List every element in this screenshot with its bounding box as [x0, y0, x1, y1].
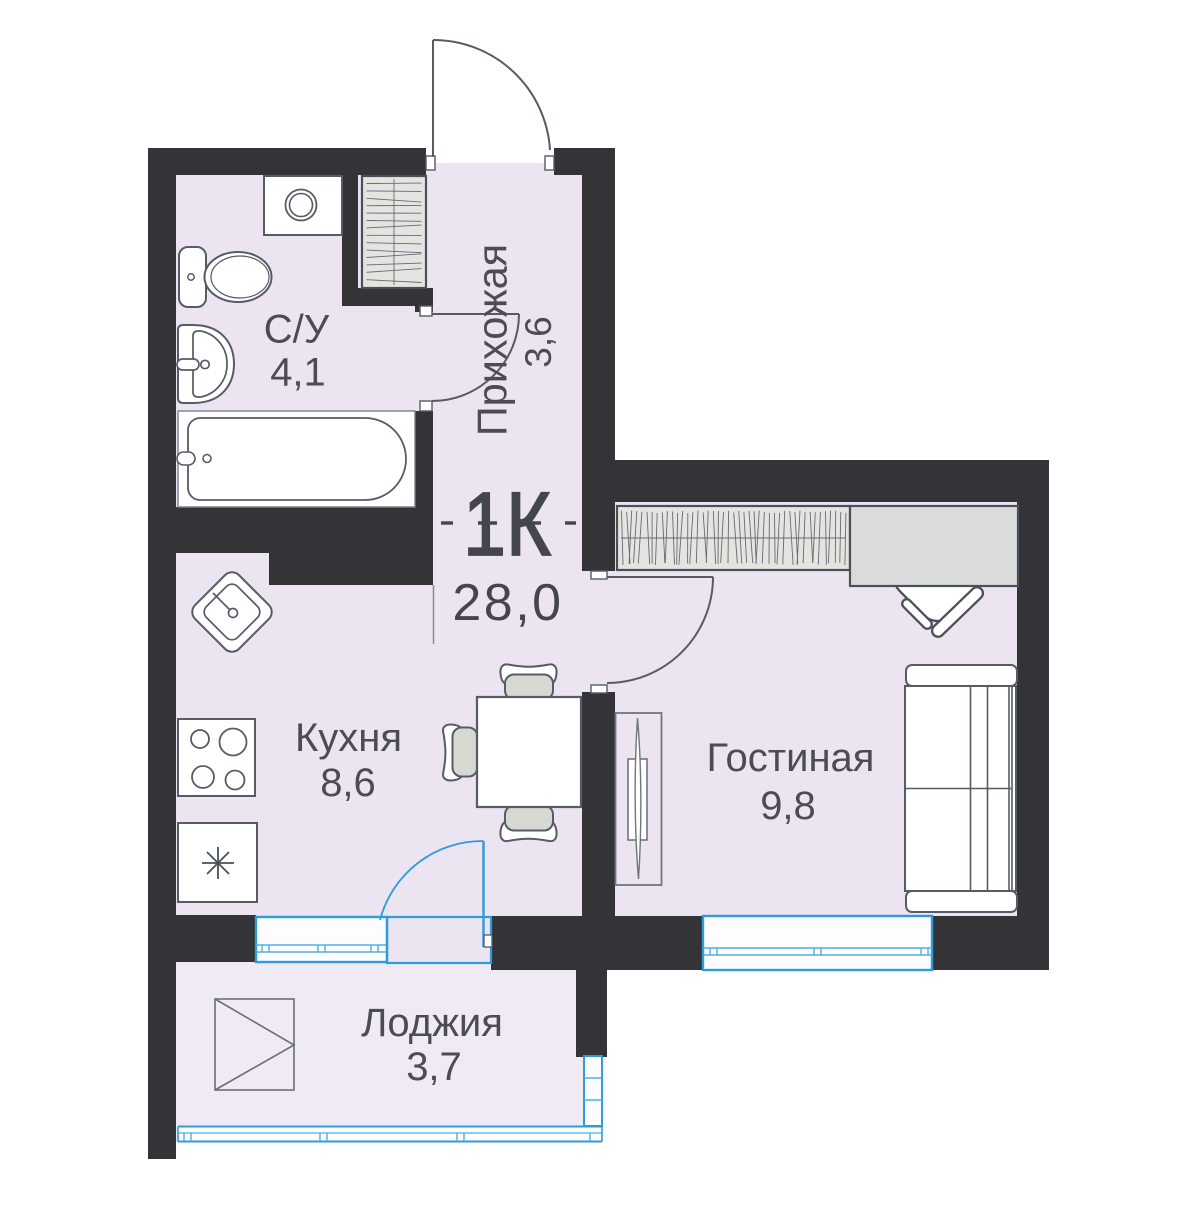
svg-text:4,1: 4,1 — [270, 351, 326, 395]
svg-text:С/У: С/У — [264, 308, 330, 352]
svg-text:Прихожая: Прихожая — [469, 244, 516, 436]
svg-text:3,7: 3,7 — [406, 1045, 462, 1089]
svg-text:Гостиная: Гостиная — [707, 736, 875, 780]
svg-text:28,0: 28,0 — [452, 574, 563, 632]
svg-text:9,8: 9,8 — [760, 784, 816, 828]
svg-text:Лоджия: Лоджия — [361, 1001, 503, 1045]
svg-text:Кухня: Кухня — [295, 716, 402, 760]
svg-text:1К: 1К — [463, 475, 551, 575]
svg-text:3,6: 3,6 — [518, 316, 559, 367]
svg-text:8,6: 8,6 — [320, 761, 376, 805]
